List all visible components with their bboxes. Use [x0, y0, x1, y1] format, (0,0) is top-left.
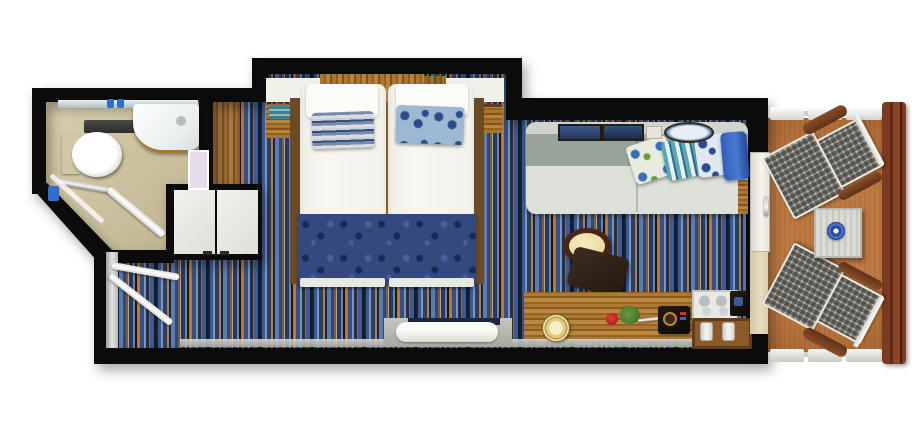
- telephone-dial: [663, 312, 677, 326]
- picture-frame-2: [602, 124, 644, 141]
- wall-sitting-top: [506, 98, 768, 120]
- picture-card: [646, 126, 662, 139]
- blue-plate: [827, 222, 845, 240]
- radio-dial: [734, 297, 743, 306]
- toilet: [72, 132, 122, 177]
- sliding-door-handle: [764, 196, 768, 216]
- bathroom-shelf: [188, 150, 209, 190]
- wardrobe-door-right: [217, 190, 258, 254]
- railing-top-1: [770, 107, 804, 120]
- bed-footboard-right: [389, 278, 474, 287]
- sofa-cushion-blue: [720, 131, 750, 181]
- decor-plate: [664, 122, 714, 143]
- bed-footboard-left: [300, 278, 385, 287]
- sofa-arm-wood: [738, 180, 748, 214]
- bottle-1: [700, 322, 713, 341]
- faucet-blue-2: [117, 99, 124, 108]
- desk-lamp: [542, 314, 570, 342]
- railing-bottom-1: [770, 349, 804, 362]
- wardrobe-door-left: [174, 190, 215, 254]
- shower-fixture: [48, 186, 59, 201]
- sink-counter: [84, 120, 136, 133]
- bench: [396, 322, 498, 342]
- bottle-2: [722, 322, 735, 341]
- striped-pillow: [311, 111, 374, 149]
- bed-runner: [298, 214, 476, 284]
- wall-bottom: [104, 348, 768, 364]
- curtain-panel: [750, 252, 768, 334]
- floral-pillow: [395, 105, 464, 145]
- wall-alcove-top: [252, 58, 522, 74]
- wardrobe-handle-left: [203, 251, 212, 255]
- plant-sprig: [620, 306, 640, 324]
- telephone-buttons: [680, 312, 686, 315]
- picture-frame-1: [558, 124, 602, 141]
- wardrobe-handle-right: [220, 251, 229, 255]
- wall-bathroom-left: [32, 88, 46, 194]
- wall-entry-left: [94, 250, 106, 364]
- railing-wood-right: [882, 102, 906, 364]
- bathtub-shower: [133, 104, 199, 153]
- tub-drain: [176, 116, 186, 126]
- faucet-blue-1: [107, 99, 114, 108]
- floor-plan: [0, 0, 920, 436]
